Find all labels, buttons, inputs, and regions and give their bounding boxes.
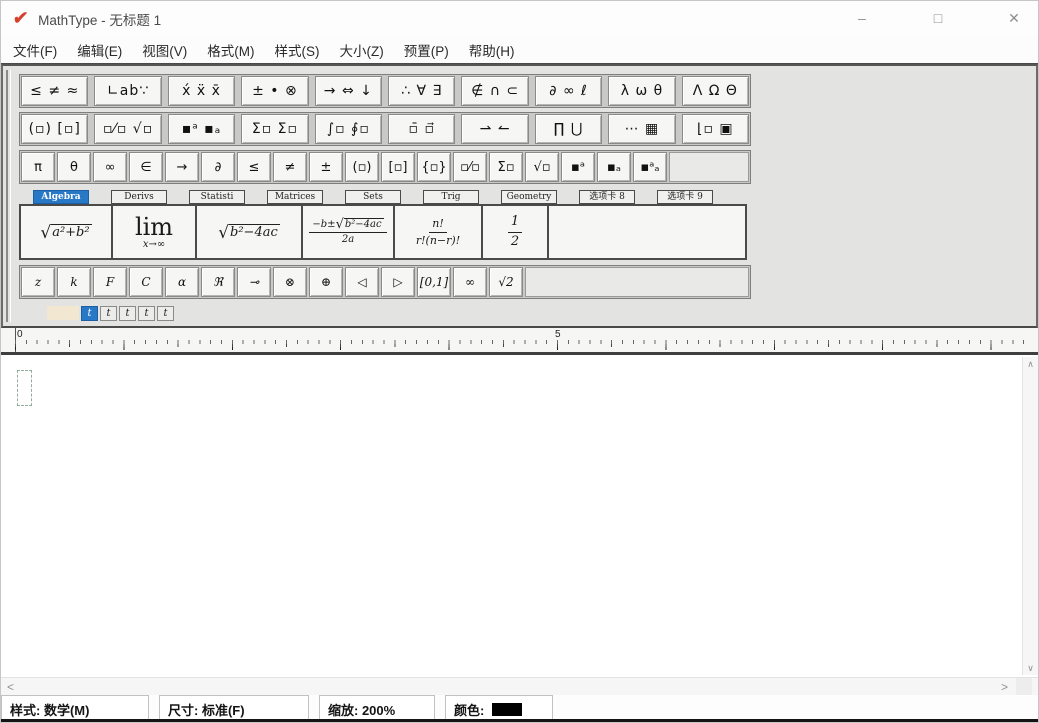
status-style-label: 样式: 数学(M) [10,700,89,719]
quick-symbol-button[interactable]: ≠ [273,152,307,182]
symbol-palette-button[interactable]: Λ Ω Θ [682,76,749,106]
size-tab-button[interactable]: t [119,306,136,321]
menu-item[interactable]: 视图(V) [132,36,197,64]
limit-main: lim [135,215,173,239]
quick-symbol-button[interactable]: ∈ [129,152,163,182]
toolbar-grip[interactable] [6,70,11,322]
category-tab[interactable]: Statisti [189,190,245,204]
close-button[interactable]: ✕ [1002,10,1026,27]
quick-symbol-button[interactable]: ▫⁄▫ [453,152,487,182]
quick-symbol-button[interactable]: {▫} [417,152,451,182]
window-controls: – □ ✕ [798,10,1026,27]
quick-symbol-button[interactable]: θ [57,152,91,182]
template-palette-button[interactable]: ∫▫ ∮▫ [315,114,382,144]
radical-sign: √ [40,224,51,241]
symbol-palette-button[interactable]: ∴ ∀ ∃ [388,76,455,106]
template-palette-row: (▫) [▫]▫⁄▫ √▫▪ᵃ ▪ₐΣ▫ Σ▫∫▫ ∮▫▫̄ ▫⃗⇀ ↼∏ ⋃⋯… [19,112,751,146]
symbol-palette-button[interactable]: x́ ẍ x̄ [168,76,235,106]
template-palette-button[interactable]: (▫) [▫] [21,114,88,144]
symbol-palette-button[interactable]: ∟ab∵ [94,76,161,106]
ruler-minor-ticks [15,340,1034,344]
symbol-palette-button[interactable]: → ⇔ ↓ [315,76,382,106]
template-palette-button[interactable]: Σ▫ Σ▫ [241,114,308,144]
expression-discriminant[interactable]: √b²−4ac [197,206,303,258]
title-bar: ✔ MathType - 无标题 1 – □ ✕ [1,1,1038,36]
status-size-label: 尺寸: 标准(F) [168,700,245,719]
template-palette-button[interactable]: ⋯ ▦ [608,114,675,144]
category-tab[interactable]: Trig [423,190,479,204]
menu-item[interactable]: 文件(F) [3,36,67,64]
size-tab-button[interactable]: t [81,306,98,321]
quick-letter-button[interactable]: ▷ [381,267,415,297]
category-tabs: AlgebraDerivsStatistiMatricesSetsTrigGeo… [33,190,1036,204]
numerator: 1 [508,214,522,232]
category-tab[interactable]: Sets [345,190,401,204]
ruler-label-5: 5 [555,329,561,340]
quick-letter-button[interactable]: k [57,267,91,297]
scroll-up-icon[interactable]: ∧ [1027,357,1034,371]
quick-letter-row: zkFCαℜ⊸⊗⊕◁▷[0,1]∞√2 [19,265,751,299]
status-size-field[interactable]: 尺寸: 标准(F) [159,695,309,721]
quick-letter-button[interactable]: ℜ [201,267,235,297]
quick-symbol-filler [669,152,749,182]
ruler: 0 5 [1,328,1038,355]
symbol-palette-button[interactable]: ≤ ≠ ≈ [21,76,88,106]
symbol-palette-button[interactable]: ± • ⊗ [241,76,308,106]
expression-sqrt-a2-b2[interactable]: √a²+b² [21,206,113,258]
menu-bar: 文件(F)编辑(E)视图(V)格式(M)样式(S)大小(Z)预置(P)帮助(H) [1,36,1038,64]
category-tab[interactable]: 选项卡 9 [657,190,713,204]
template-palette-button[interactable]: ∏ ⋃ [535,114,602,144]
denominator: 2a [342,233,354,247]
denominator: 2 [511,233,519,250]
scroll-right-icon[interactable]: > [1001,680,1008,694]
category-tab[interactable]: 选项卡 8 [579,190,635,204]
menu-item[interactable]: 帮助(H) [459,36,525,64]
radical-body: b²−4ac [229,224,280,240]
equation-editing-area[interactable]: ∧ ∨ [1,355,1038,677]
expression-one-half[interactable]: 12 [483,206,549,258]
quick-symbol-button[interactable]: Σ▫ [489,152,523,182]
template-palette-button[interactable]: ⌊▫ ▣ [682,114,749,144]
toolbar-size-tabs: ttttt [47,305,1036,321]
quick-letter-button[interactable]: C [129,267,163,297]
ruler-label-0: 0 [17,329,23,340]
template-palette-button[interactable]: ▫⁄▫ √▫ [94,114,161,144]
color-swatch [492,703,522,716]
quick-symbol-button[interactable]: ± [309,152,343,182]
vertical-scrollbar[interactable]: ∧ ∨ [1022,357,1038,675]
status-bar: 样式: 数学(M) 尺寸: 标准(F) 缩放: 200% 颜色: [1,695,1038,721]
quick-letter-button[interactable]: ⊸ [237,267,271,297]
quick-symbol-button[interactable]: → [165,152,199,182]
symbol-palette-row: ≤ ≠ ≈∟ab∵x́ ẍ x̄± • ⊗→ ⇔ ↓∴ ∀ ∃∉ ∩ ⊂∂ ∞ … [19,74,751,108]
size-tab-button[interactable]: t [100,306,117,321]
radical-sign: √ [218,224,229,241]
quick-letter-button[interactable]: ◁ [345,267,379,297]
mathtype-logo-icon: ✔ [12,8,29,29]
category-tab[interactable]: Geometry [501,190,557,204]
symbol-palette-button[interactable]: ∉ ∩ ⊂ [461,76,528,106]
radical-body: b²−4ac [344,218,384,232]
quick-symbol-button[interactable]: (▫) [345,152,379,182]
quick-symbol-button[interactable]: ≤ [237,152,271,182]
insertion-slot [17,370,32,406]
quick-symbol-button[interactable]: ▪ₐ [597,152,631,182]
menu-item[interactable]: 样式(S) [265,36,330,64]
category-tab[interactable]: Derivs [111,190,167,204]
horizontal-scrollbar[interactable]: < > [1,677,1038,695]
denominator: r!(n−r)! [416,233,460,248]
quick-letter-button[interactable]: z [21,267,55,297]
size-tab-button[interactable]: t [138,306,155,321]
radical-sign: √ [336,218,344,231]
menu-item[interactable]: 格式(M) [197,36,264,64]
quick-letter-filler [525,267,749,297]
status-color-field[interactable]: 颜色: [445,695,553,721]
template-palette-button[interactable]: ⇀ ↼ [461,114,528,144]
status-zoom-field[interactable]: 缩放: 200% [319,695,435,721]
size-tab-lead [47,306,79,320]
category-tab[interactable]: Algebra [33,190,89,204]
symbol-palette-button[interactable]: λ ω θ [608,76,675,106]
quick-letter-button[interactable]: ⊕ [309,267,343,297]
scroll-left-icon[interactable]: < [7,680,14,694]
symbol-palette-button[interactable]: ∂ ∞ ℓ [535,76,602,106]
quick-symbol-row: πθ∞∈→∂≤≠±(▫)[▫]{▫}▫⁄▫Σ▫√▫▪ᵃ▪ₐ▪ᵃₐ [19,150,751,184]
quick-letter-button[interactable]: α [165,267,199,297]
quick-letter-button[interactable]: √2 [489,267,523,297]
menu-item[interactable]: 编辑(E) [67,36,132,64]
numerator-prefix: −b± [312,219,335,232]
quick-letter-button[interactable]: ⊗ [273,267,307,297]
menu-item[interactable]: 大小(Z) [330,36,394,64]
scroll-down-icon[interactable]: ∨ [1027,661,1034,675]
limit-subscript: x→∞ [143,240,165,250]
template-palette-button[interactable]: ▫̄ ▫⃗ [388,114,455,144]
toolbar-panel: ≤ ≠ ≈∟ab∵x́ ẍ x̄± • ⊗→ ⇔ ↓∴ ∀ ∃∉ ∩ ⊂∂ ∞ … [1,64,1038,328]
numerator: n! [429,217,447,233]
category-tab[interactable]: Matrices [267,190,323,204]
size-tab-button[interactable]: t [157,306,174,321]
quick-letter-button[interactable]: [0,1] [417,267,451,297]
window-title: MathType - 无标题 1 [38,9,161,29]
quick-symbol-button[interactable]: π [21,152,55,182]
expression-limit[interactable]: limx→∞ [113,206,197,258]
status-zoom-label: 缩放: 200% [328,700,395,719]
quick-symbol-button[interactable]: ∞ [93,152,127,182]
expression-combination[interactable]: n!r!(n−r)! [395,206,483,258]
expression-bar-filler [549,206,745,258]
quick-symbol-button[interactable]: ∂ [201,152,235,182]
mathtype-window: ✔ MathType - 无标题 1 – □ ✕ 文件(F)编辑(E)视图(V)… [0,0,1039,723]
expression-bar: √a²+b² limx→∞ √b²−4ac −b±√b²−4ac 2a n!r!… [19,204,747,260]
quick-symbol-button[interactable]: √▫ [525,152,559,182]
template-palette-button[interactable]: ▪ᵃ ▪ₐ [168,114,235,144]
menu-item[interactable]: 预置(P) [394,36,459,64]
scrollbar-corner [1016,678,1032,695]
expression-quadratic-formula[interactable]: −b±√b²−4ac 2a [303,206,395,258]
quick-letter-button[interactable]: F [93,267,127,297]
status-style-field[interactable]: 样式: 数学(M) [1,695,149,721]
window-bottom-edge [1,719,1038,722]
radical-body: a²+b² [51,224,91,240]
quick-symbol-button[interactable]: [▫] [381,152,415,182]
minimize-button[interactable]: – [850,10,874,27]
quick-letter-button[interactable]: ∞ [453,267,487,297]
maximize-button[interactable]: □ [926,10,950,27]
quick-symbol-button[interactable]: ▪ᵃₐ [633,152,667,182]
status-color-label: 颜色: [454,700,484,719]
quick-symbol-button[interactable]: ▪ᵃ [561,152,595,182]
